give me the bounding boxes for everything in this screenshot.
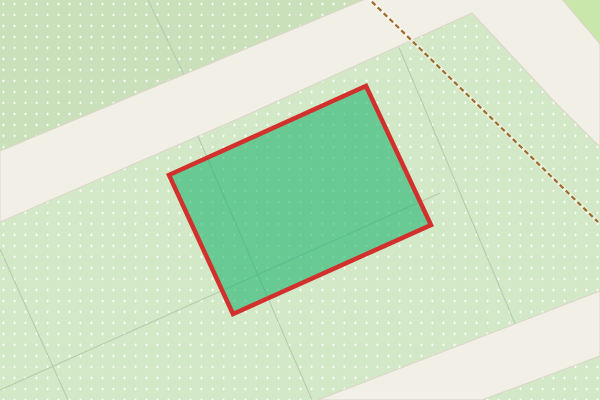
map-view [0, 0, 600, 400]
map-canvas[interactable] [0, 0, 600, 400]
